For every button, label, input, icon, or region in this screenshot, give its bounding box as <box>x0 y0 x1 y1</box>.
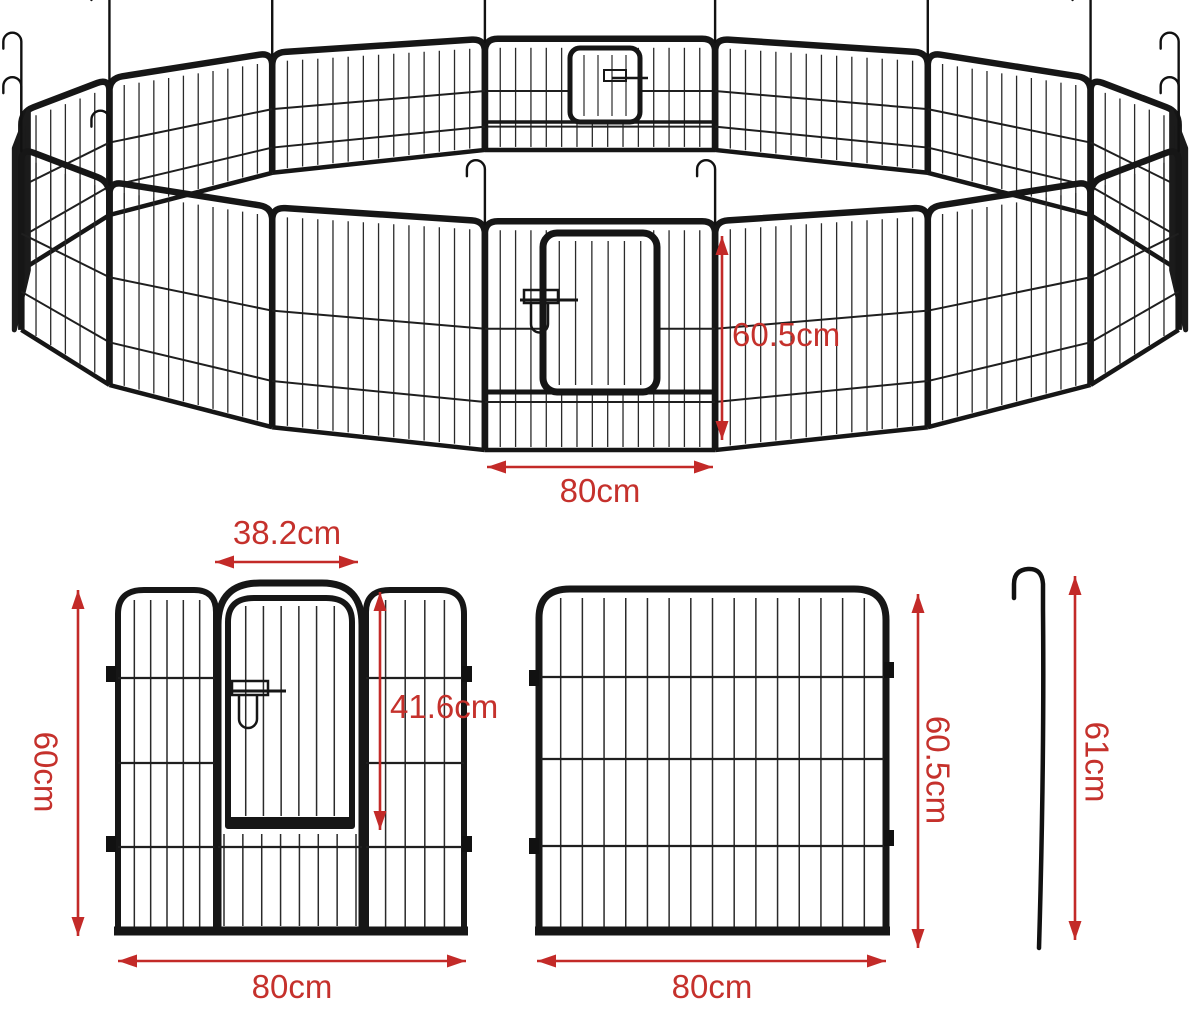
dim-label-door-width: 38.2cm <box>233 516 341 549</box>
dim-label-stake-length: 61cm <box>1081 722 1114 803</box>
ground-stake <box>1014 569 1043 948</box>
plain-panel-front-view <box>529 589 894 934</box>
playpen-ring-view <box>14 39 1185 450</box>
dim-label-plain-panel-height: 60.5cm <box>922 716 955 824</box>
product-dimension-diagram: 60.5cm 80cm 38.2cm 41.6cm 60cm 80cm 60.5… <box>0 0 1200 1015</box>
dim-label-plain-panel-width: 80cm <box>672 970 753 1003</box>
dim-label-ring-front-panel-width: 80cm <box>560 474 641 507</box>
dim-label-door-height: 41.6cm <box>390 690 498 723</box>
door-panel-front-view <box>106 583 472 934</box>
dim-label-door-panel-width: 80cm <box>252 970 333 1003</box>
dim-label-door-panel-height: 60cm <box>30 732 63 813</box>
dim-label-ring-panel-height: 60.5cm <box>732 318 840 351</box>
